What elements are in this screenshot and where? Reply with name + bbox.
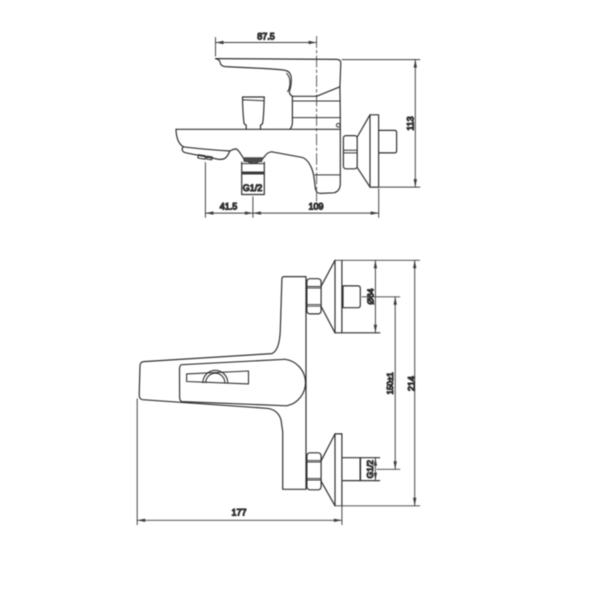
svg-text:177: 177	[231, 507, 246, 517]
svg-text:87.5: 87.5	[257, 32, 275, 42]
svg-text:150±1: 150±1	[386, 372, 395, 395]
svg-text:G1/2: G1/2	[365, 460, 375, 479]
svg-text:41.5: 41.5	[220, 202, 238, 212]
svg-text:G1/2: G1/2	[243, 183, 263, 193]
svg-text:113: 113	[406, 116, 416, 130]
svg-text:109: 109	[308, 202, 323, 212]
svg-text:214: 214	[406, 376, 416, 391]
